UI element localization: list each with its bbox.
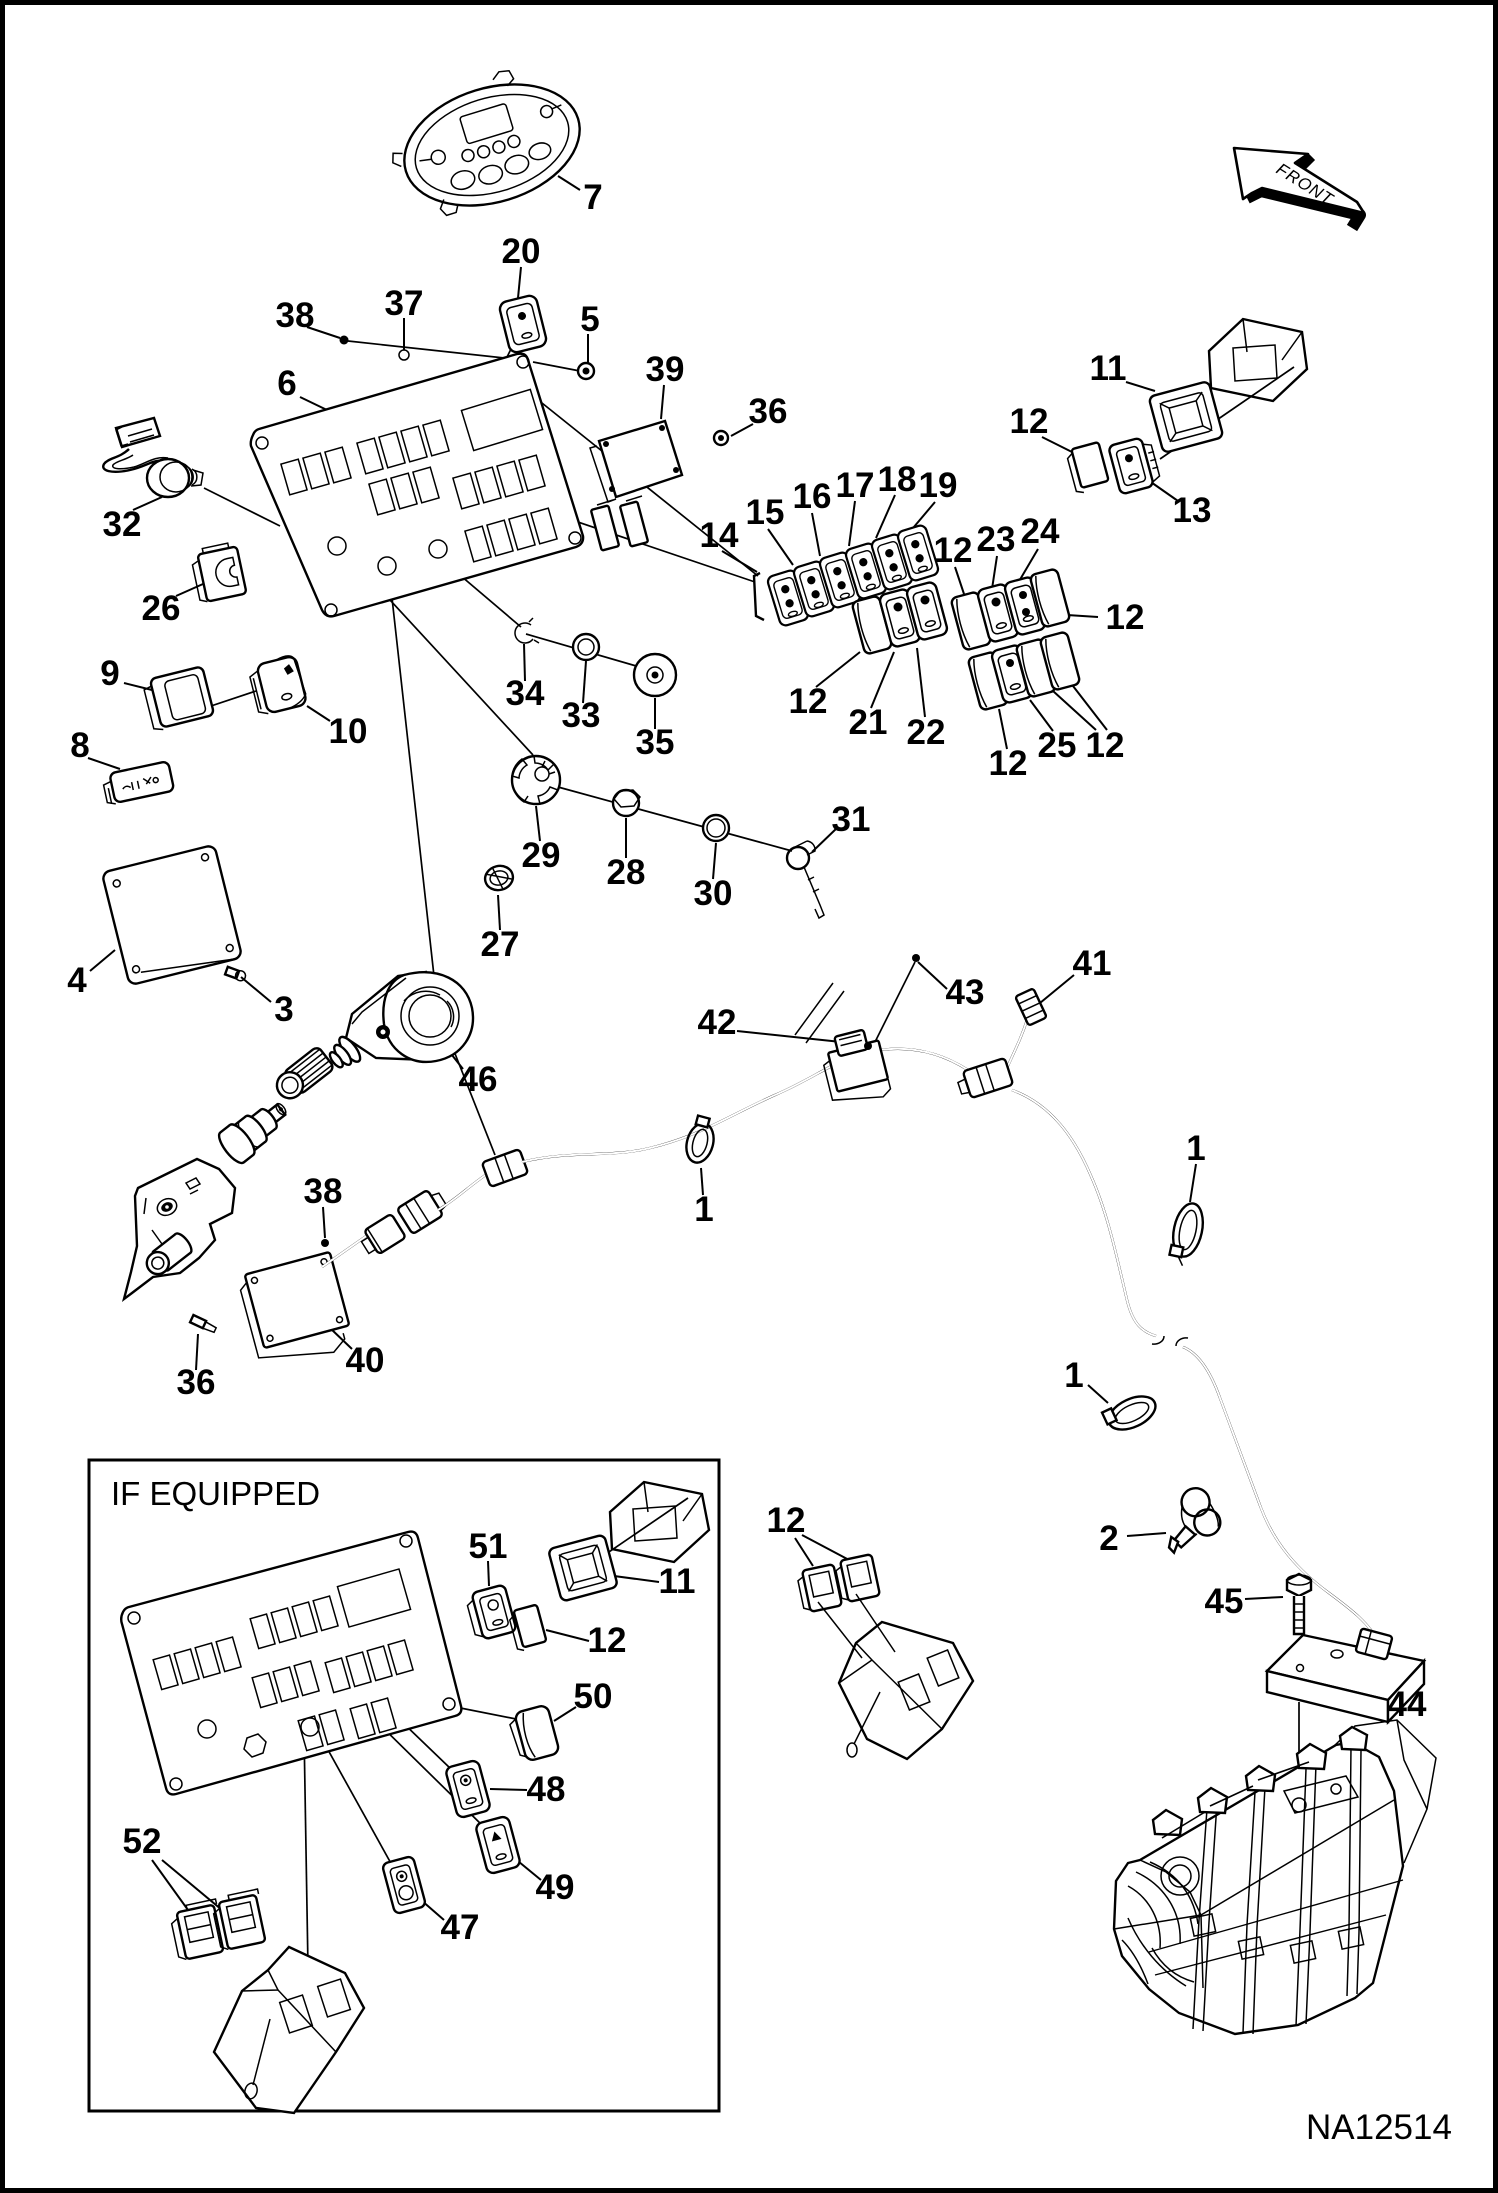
svg-text:20: 20 [502,232,541,271]
svg-text:12: 12 [1010,402,1049,441]
svg-text:48: 48 [527,1770,566,1809]
svg-text:35: 35 [636,723,675,762]
svg-text:12: 12 [1086,726,1125,765]
svg-text:29: 29 [522,836,561,875]
svg-text:38: 38 [304,1172,343,1211]
svg-text:12: 12 [588,1621,627,1660]
svg-text:1: 1 [1064,1356,1083,1395]
svg-text:9: 9 [100,654,119,693]
svg-text:26: 26 [142,589,181,628]
svg-text:42: 42 [698,1003,737,1042]
svg-text:34: 34 [506,674,545,713]
svg-text:12: 12 [989,744,1028,783]
svg-text:45: 45 [1205,1582,1244,1621]
svg-text:16: 16 [793,477,832,516]
svg-text:44: 44 [1388,1685,1427,1724]
svg-text:36: 36 [749,392,788,431]
svg-text:5: 5 [580,300,599,339]
svg-text:39: 39 [646,350,685,389]
svg-text:10: 10 [329,712,368,751]
svg-text:38: 38 [276,296,315,335]
svg-text:21: 21 [849,703,888,742]
svg-text:25: 25 [1038,726,1077,765]
svg-text:IF EQUIPPED: IF EQUIPPED [111,1475,320,1512]
svg-text:15: 15 [746,493,785,532]
svg-text:12: 12 [934,531,973,570]
svg-text:19: 19 [919,466,958,505]
svg-text:50: 50 [574,1677,613,1716]
svg-text:12: 12 [789,682,828,721]
svg-text:2: 2 [1099,1519,1118,1558]
svg-text:12: 12 [767,1501,806,1540]
svg-text:46: 46 [459,1060,498,1099]
svg-text:23: 23 [977,520,1016,559]
svg-text:13: 13 [1173,491,1212,530]
svg-text:33: 33 [562,696,601,735]
svg-text:17: 17 [836,466,875,505]
svg-text:28: 28 [607,853,646,892]
svg-text:31: 31 [832,800,871,839]
svg-text:49: 49 [536,1868,575,1907]
svg-text:32: 32 [103,505,142,544]
svg-text:1: 1 [694,1190,713,1229]
svg-text:36: 36 [177,1363,216,1402]
svg-text:6: 6 [277,364,296,403]
svg-text:11: 11 [659,1562,696,1601]
svg-text:NA12514: NA12514 [1306,2108,1452,2147]
svg-text:37: 37 [385,284,424,323]
svg-text:24: 24 [1021,512,1060,551]
svg-text:41: 41 [1073,944,1112,983]
svg-text:51: 51 [469,1527,508,1566]
svg-text:30: 30 [694,874,733,913]
svg-text:18: 18 [878,460,917,499]
svg-text:12: 12 [1106,598,1145,637]
svg-text:14: 14 [700,516,739,555]
svg-text:52: 52 [123,1822,162,1861]
svg-text:40: 40 [346,1341,385,1380]
svg-text:4: 4 [67,961,87,1000]
svg-text:22: 22 [907,713,946,752]
svg-text:7: 7 [583,178,602,217]
svg-text:1: 1 [1186,1129,1205,1168]
svg-text:43: 43 [946,973,985,1012]
svg-text:3: 3 [274,990,293,1029]
svg-text:11: 11 [1090,349,1127,388]
svg-text:8: 8 [70,726,89,765]
svg-text:47: 47 [441,1908,480,1947]
svg-text:27: 27 [481,925,520,964]
